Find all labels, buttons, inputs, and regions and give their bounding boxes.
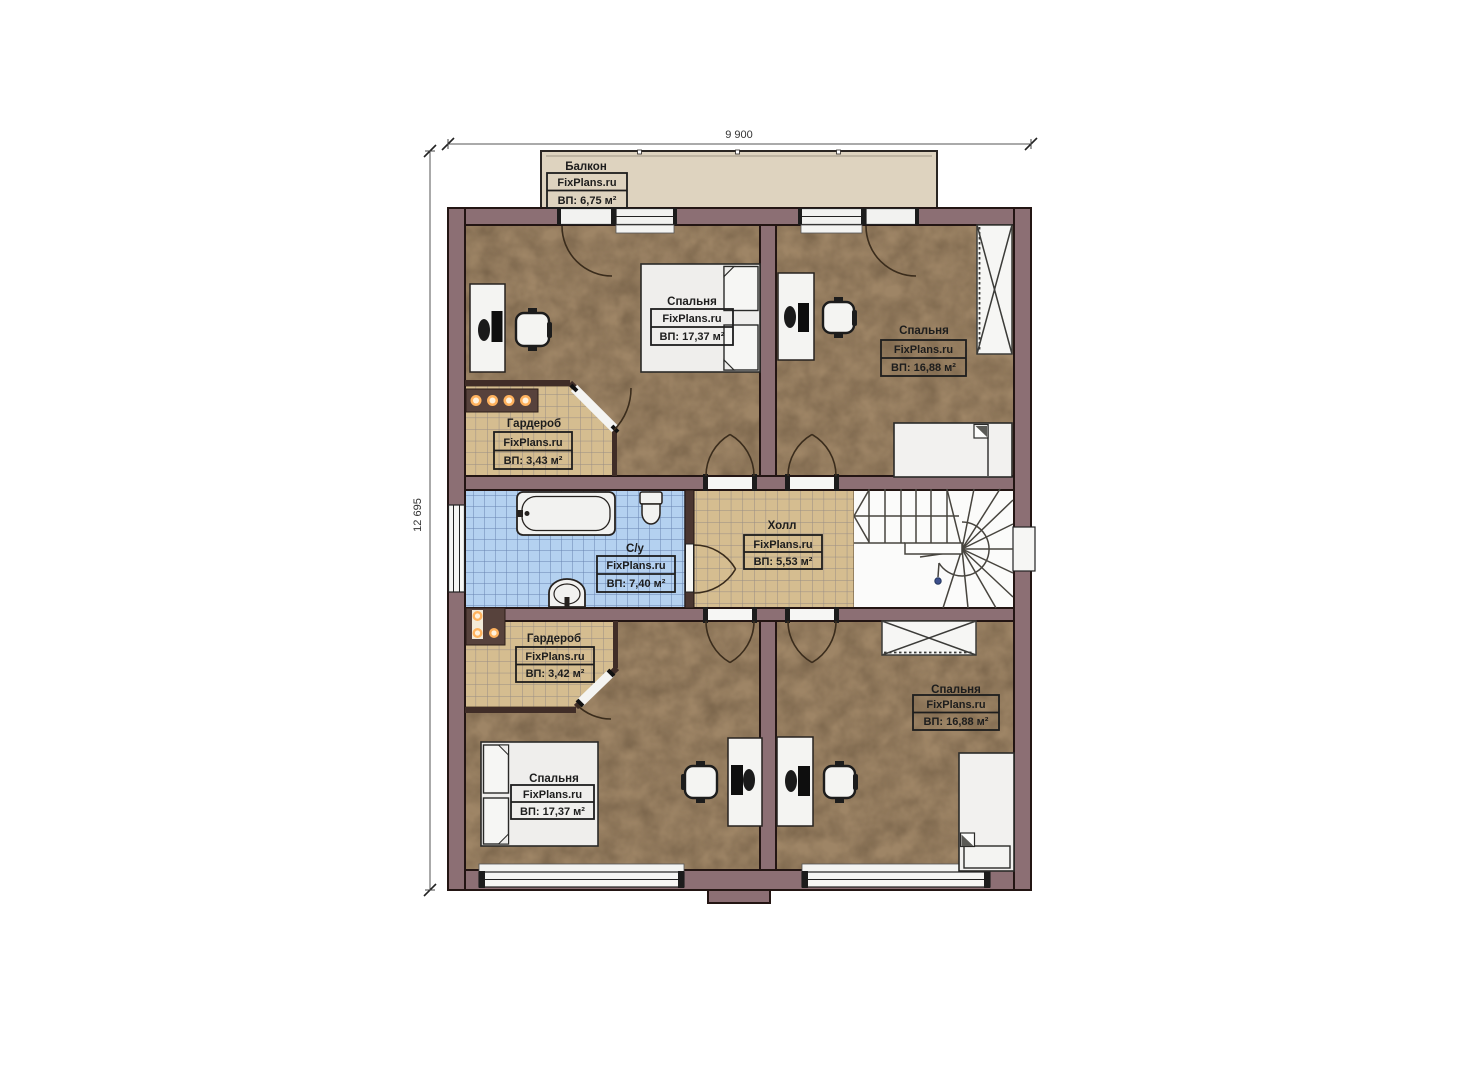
svg-text:ВП: 6,75 м²: ВП: 6,75 м² xyxy=(558,195,617,207)
svg-text:Спальня: Спальня xyxy=(529,773,579,785)
svg-text:ВП: 16,88 м²: ВП: 16,88 м² xyxy=(924,716,989,728)
svg-text:FixPlans.ru: FixPlans.ru xyxy=(753,539,812,551)
svg-text:FixPlans.ru: FixPlans.ru xyxy=(557,177,616,189)
svg-text:Холл: Холл xyxy=(768,520,797,532)
svg-text:12 695: 12 695 xyxy=(412,498,424,532)
svg-text:ВП: 3,42 м²: ВП: 3,42 м² xyxy=(526,668,585,680)
svg-text:Спальня: Спальня xyxy=(899,325,949,337)
svg-text:Спальня: Спальня xyxy=(667,296,717,308)
svg-text:ВП: 3,43 м²: ВП: 3,43 м² xyxy=(504,455,563,467)
svg-text:FixPlans.ru: FixPlans.ru xyxy=(503,437,562,449)
svg-text:Гардероб: Гардероб xyxy=(507,418,561,430)
svg-text:FixPlans.ru: FixPlans.ru xyxy=(525,651,584,663)
svg-text:ВП: 7,40 м²: ВП: 7,40 м² xyxy=(607,578,666,590)
svg-text:ВП: 16,88 м²: ВП: 16,88 м² xyxy=(891,362,956,374)
svg-text:Балкон: Балкон xyxy=(565,161,607,173)
svg-text:ВП: 17,37 м²: ВП: 17,37 м² xyxy=(660,331,725,343)
svg-text:Гардероб: Гардероб xyxy=(527,633,581,645)
svg-text:С/у: С/у xyxy=(626,543,645,555)
svg-text:FixPlans.ru: FixPlans.ru xyxy=(926,699,985,711)
svg-text:9 900: 9 900 xyxy=(725,129,753,141)
svg-text:FixPlans.ru: FixPlans.ru xyxy=(523,789,582,801)
svg-text:FixPlans.ru: FixPlans.ru xyxy=(894,344,953,356)
svg-text:FixPlans.ru: FixPlans.ru xyxy=(606,560,665,572)
svg-text:ВП: 17,37 м²: ВП: 17,37 м² xyxy=(520,806,585,818)
svg-text:ВП: 5,53 м²: ВП: 5,53 м² xyxy=(754,556,813,568)
svg-text:FixPlans.ru: FixPlans.ru xyxy=(662,313,721,325)
